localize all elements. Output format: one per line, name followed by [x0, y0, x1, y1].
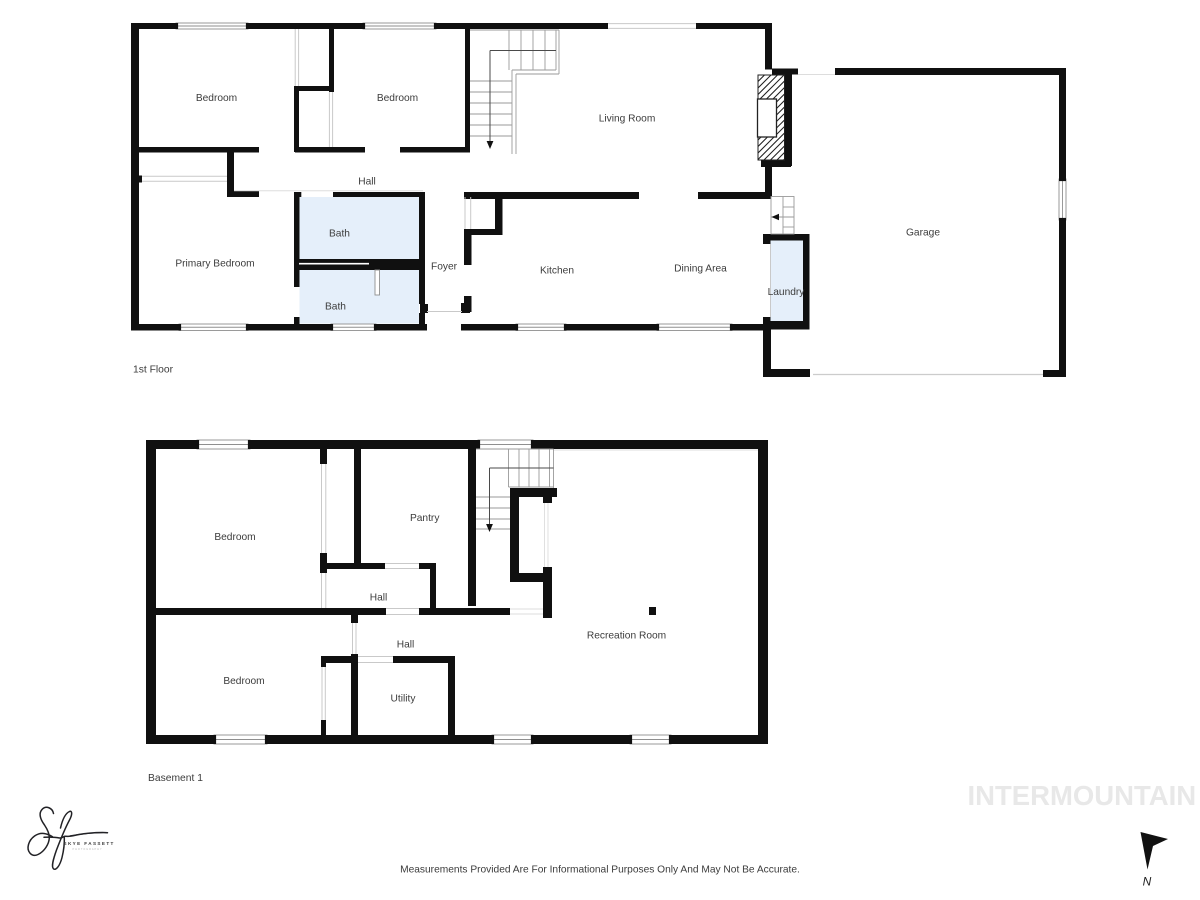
svg-text:Hall: Hall	[358, 177, 376, 188]
svg-text:Pantry: Pantry	[410, 513, 440, 524]
svg-text:Foyer: Foyer	[431, 262, 458, 273]
svg-text:Measurements Provided Are For: Measurements Provided Are For Informatio…	[400, 865, 800, 876]
svg-text:Primary Bedroom: Primary Bedroom	[175, 259, 254, 270]
svg-text:PHOTOGRAPHY: PHOTOGRAPHY	[73, 847, 103, 851]
svg-text:N: N	[1143, 875, 1152, 889]
svg-text:Bedroom: Bedroom	[196, 93, 237, 104]
svg-text:Dining Area: Dining Area	[674, 264, 727, 275]
svg-text:Living Room: Living Room	[599, 114, 656, 125]
svg-text:Recreation Room: Recreation Room	[587, 631, 666, 642]
svg-text:Bath: Bath	[329, 229, 350, 240]
svg-text:INTERMOUNTAIN: INTERMOUNTAIN	[968, 780, 1197, 811]
svg-text:Basement 1: Basement 1	[148, 773, 203, 784]
svg-text:1st Floor: 1st Floor	[133, 365, 174, 376]
svg-text:SKYE FASSETT: SKYE FASSETT	[64, 841, 115, 846]
svg-text:Hall: Hall	[397, 640, 415, 651]
svg-text:Bath: Bath	[325, 302, 346, 313]
svg-text:Utility: Utility	[391, 694, 417, 705]
svg-text:Garage: Garage	[906, 228, 940, 239]
svg-text:Laundry: Laundry	[768, 287, 806, 298]
svg-text:Kitchen: Kitchen	[540, 266, 574, 277]
svg-text:Hall: Hall	[370, 593, 388, 604]
svg-text:Bedroom: Bedroom	[214, 532, 255, 543]
svg-text:Bedroom: Bedroom	[223, 676, 264, 687]
svg-text:Bedroom: Bedroom	[377, 93, 418, 104]
